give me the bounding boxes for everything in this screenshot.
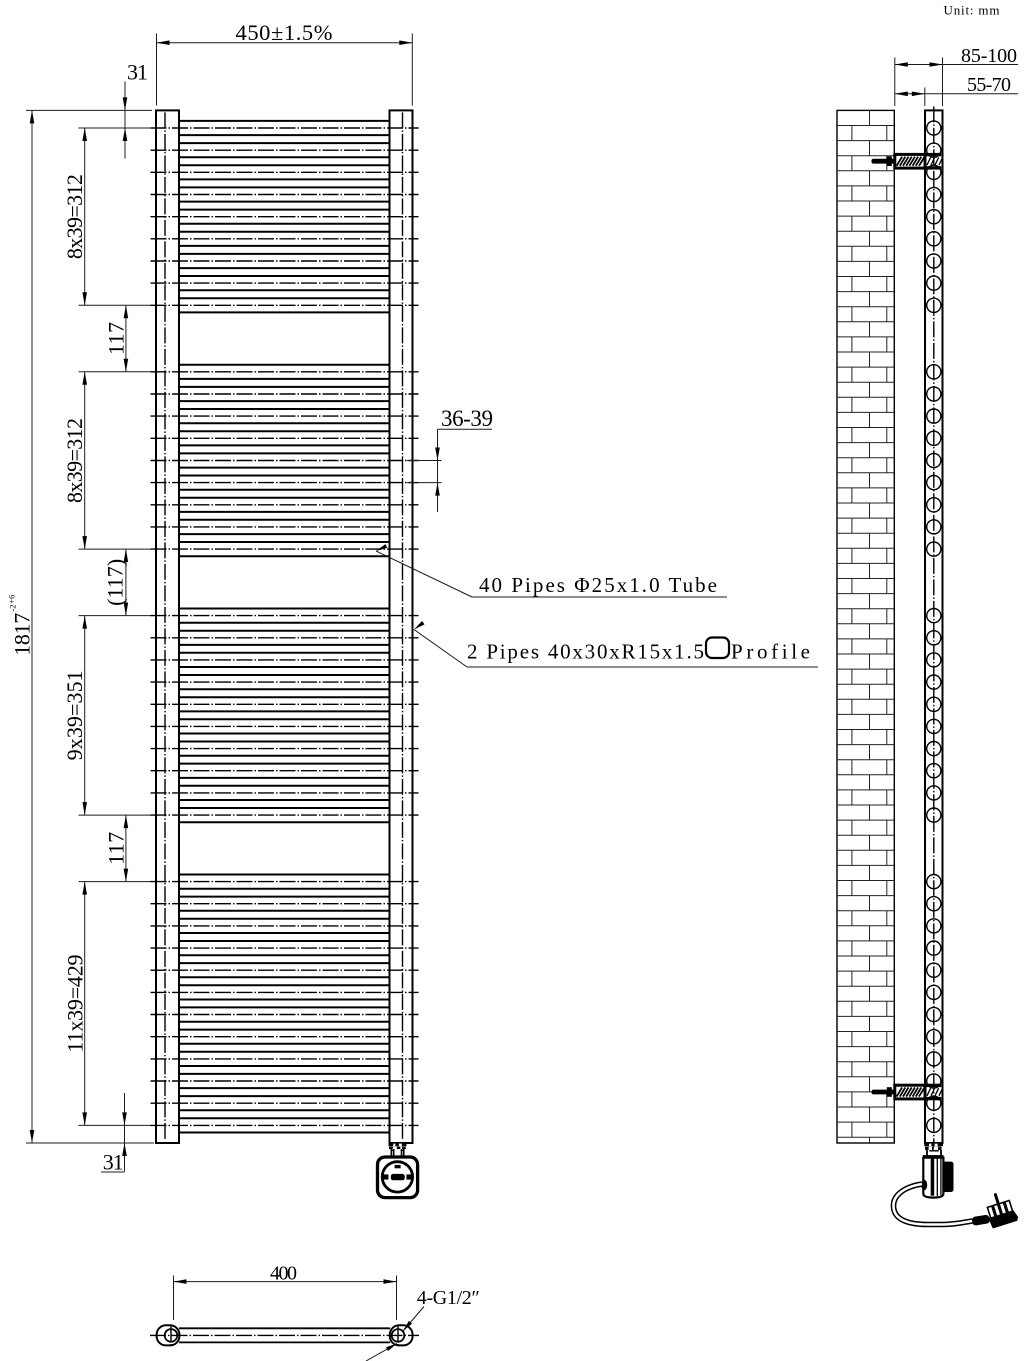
svg-text:8x39=312: 8x39=312 [62, 174, 87, 259]
svg-text:400: 400 [270, 1263, 297, 1285]
svg-text:2 Pipes 40x30xR15x1.5: 2 Pipes 40x30xR15x1.5 [467, 640, 704, 664]
svg-text:9x39=351: 9x39=351 [62, 670, 87, 760]
svg-text:Profile: Profile [731, 640, 810, 664]
svg-text:8x39=312: 8x39=312 [62, 418, 87, 503]
svg-text:117: 117 [104, 832, 129, 865]
svg-text:+6: +6 [6, 595, 16, 604]
svg-text:4-G1/2″: 4-G1/2″ [417, 1287, 480, 1309]
svg-text:1817: 1817 [10, 613, 35, 656]
svg-text:(117): (117) [103, 559, 128, 606]
svg-text:31: 31 [103, 1150, 124, 1175]
svg-text:36-39: 36-39 [441, 406, 493, 431]
svg-text:11x39=429: 11x39=429 [63, 954, 88, 1052]
svg-text:85-100: 85-100 [961, 45, 1017, 67]
svg-text:450±1.5%: 450±1.5% [236, 20, 333, 45]
svg-text:117: 117 [104, 322, 129, 355]
svg-text:40 Pipes Φ25x1.0 Tube: 40 Pipes Φ25x1.0 Tube [479, 573, 717, 597]
svg-text:Unit: mm: Unit: mm [944, 2, 1000, 17]
svg-text:55-70: 55-70 [967, 74, 1011, 96]
svg-text:-2: -2 [7, 605, 17, 612]
svg-text:31: 31 [127, 60, 148, 85]
